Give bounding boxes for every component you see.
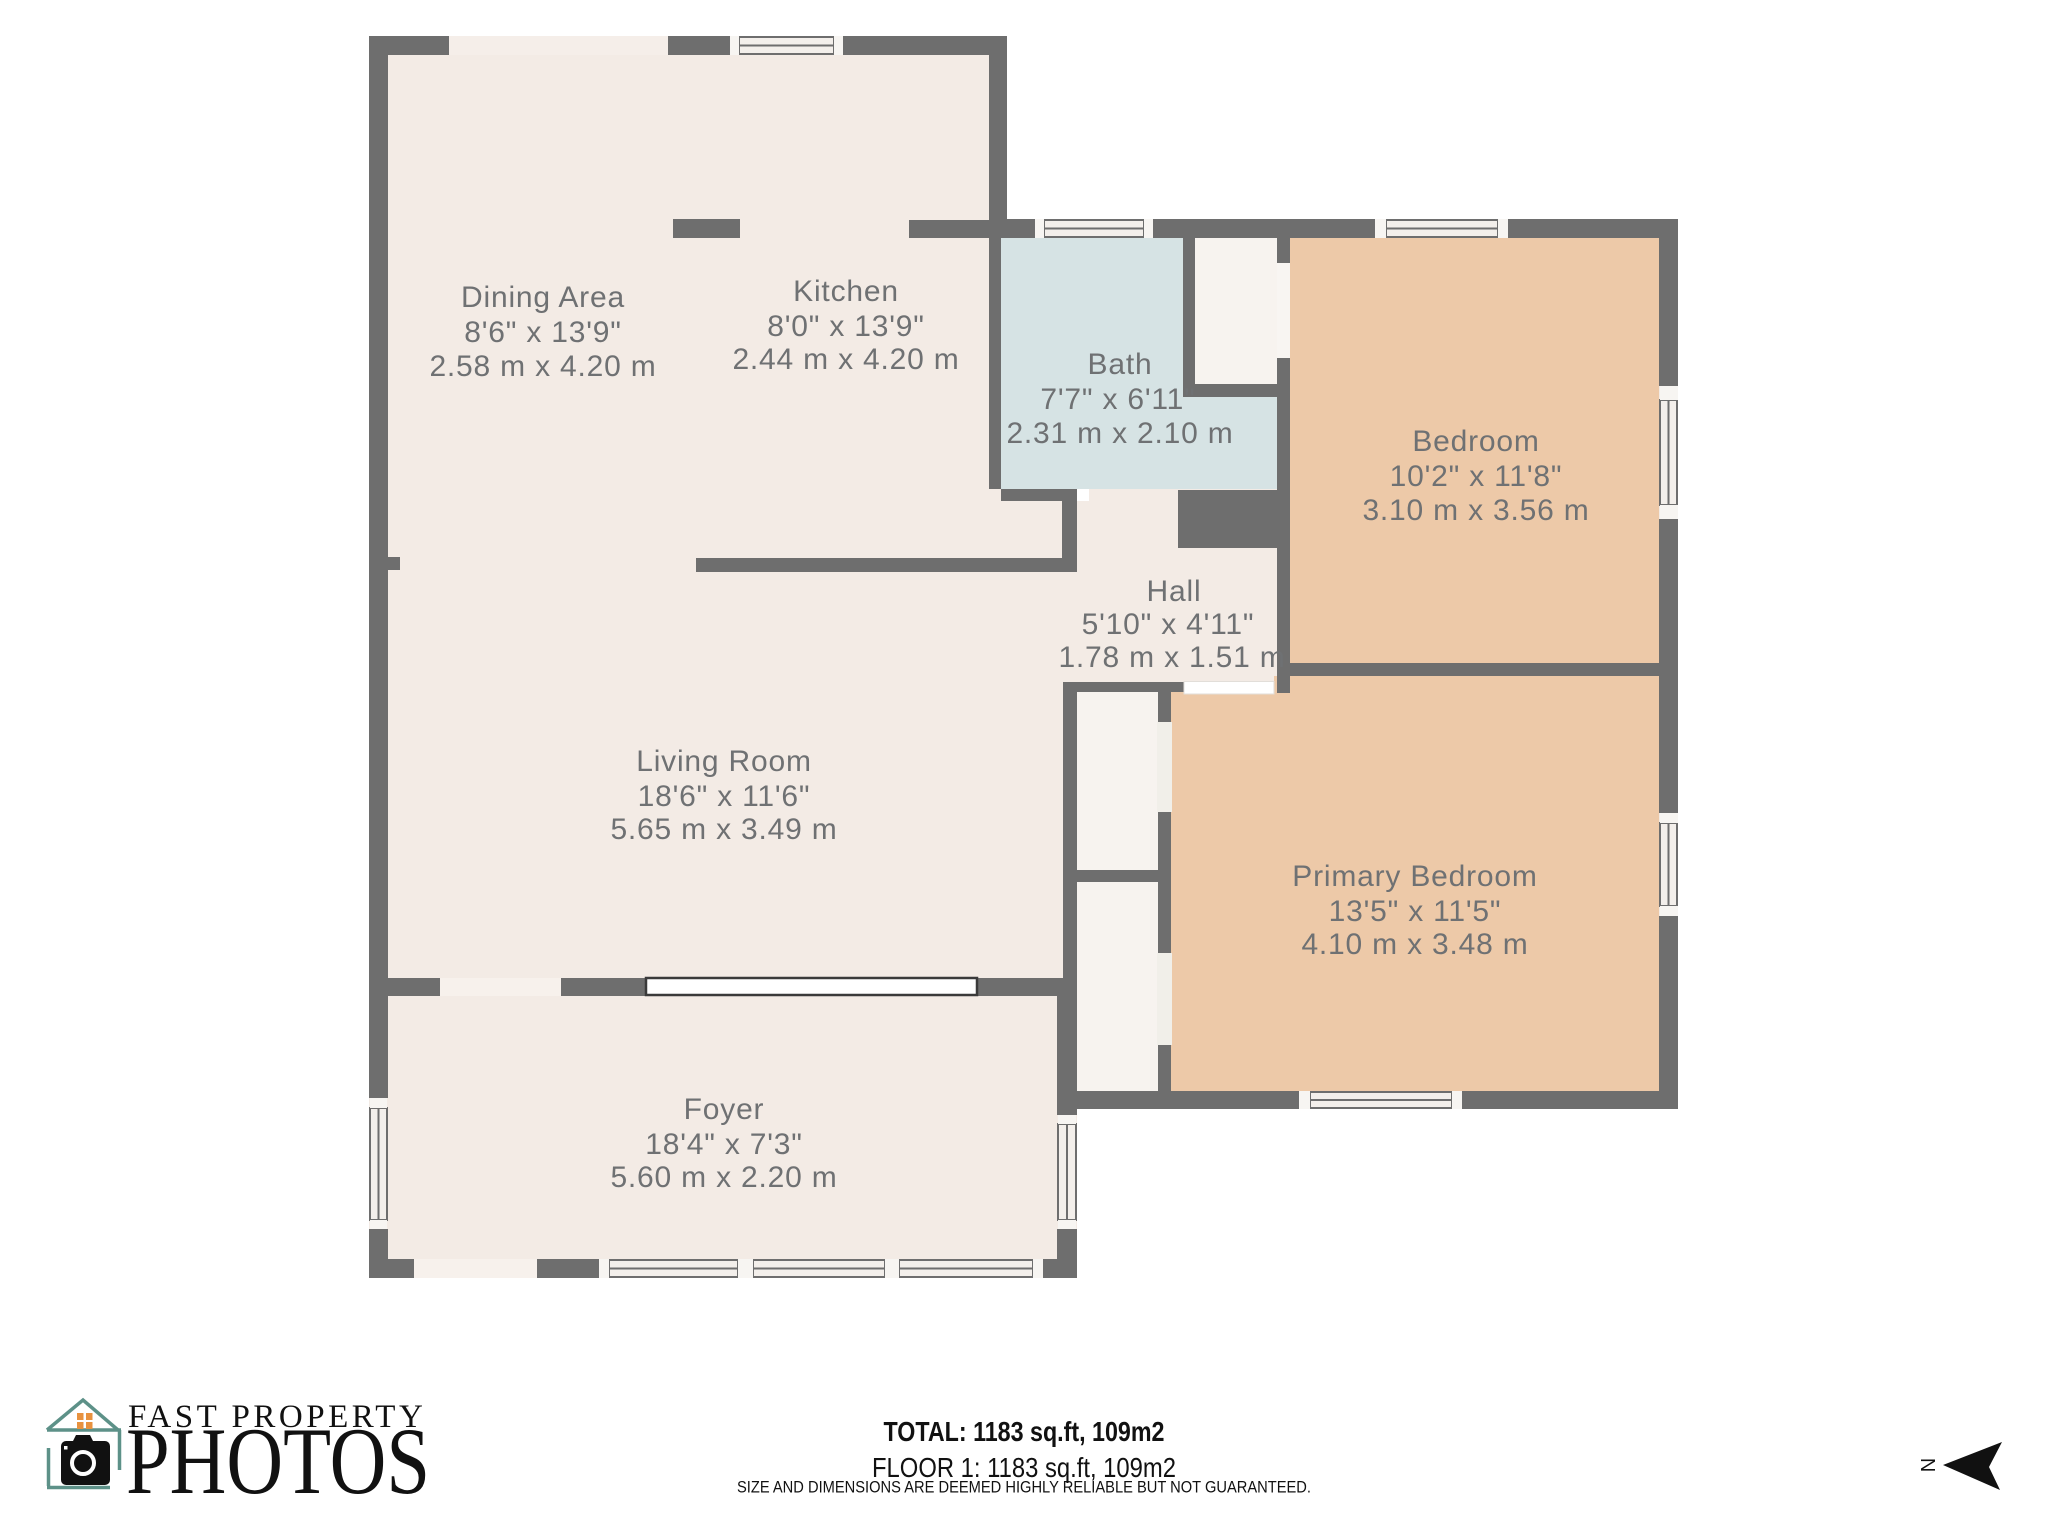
svg-text:13'5" x 11'5": 13'5" x 11'5"	[1329, 895, 1502, 928]
svg-text:8'6" x 13'9": 8'6" x 13'9"	[464, 316, 621, 349]
svg-text:Dining Area: Dining Area	[461, 281, 625, 314]
svg-text:5.65 m x 3.49 m: 5.65 m x 3.49 m	[610, 813, 837, 846]
svg-text:5'10" x 4'11": 5'10" x 4'11"	[1082, 608, 1255, 641]
svg-text:Primary Bedroom: Primary Bedroom	[1292, 860, 1537, 893]
svg-text:10'2" x 11'8": 10'2" x 11'8"	[1390, 460, 1563, 493]
svg-text:SIZE AND DIMENSIONS ARE DEEMED: SIZE AND DIMENSIONS ARE DEEMED HIGHLY RE…	[737, 1479, 1311, 1497]
svg-text:Bath: Bath	[1088, 348, 1153, 381]
svg-text:TOTAL: 1183 sq.ft, 109m2: TOTAL: 1183 sq.ft, 109m2	[884, 1416, 1165, 1447]
svg-text:4.10 m x 3.48 m: 4.10 m x 3.48 m	[1301, 928, 1528, 961]
svg-text:18'4" x 7'3": 18'4" x 7'3"	[645, 1128, 802, 1161]
svg-text:7'7" x 6'11": 7'7" x 6'11"	[1040, 383, 1195, 416]
svg-text:18'6" x 11'6": 18'6" x 11'6"	[638, 780, 811, 813]
svg-text:N: N	[1918, 1458, 1940, 1472]
svg-text:Foyer: Foyer	[684, 1093, 765, 1126]
svg-text:3.10 m x 3.56 m: 3.10 m x 3.56 m	[1362, 494, 1589, 527]
svg-text:8'0" x 13'9": 8'0" x 13'9"	[767, 310, 924, 343]
svg-text:1.78 m x 1.51 m: 1.78 m x 1.51 m	[1058, 641, 1285, 674]
svg-text:Hall: Hall	[1147, 575, 1202, 608]
svg-text:2.58 m x 4.20 m: 2.58 m x 4.20 m	[429, 350, 656, 383]
svg-text:PHOTOS: PHOTOS	[126, 1408, 430, 1514]
svg-text:5.60 m x 2.20 m: 5.60 m x 2.20 m	[610, 1161, 837, 1194]
svg-text:2.31 m x 2.10 m: 2.31 m x 2.10 m	[1006, 417, 1233, 450]
svg-text:Kitchen: Kitchen	[793, 275, 899, 308]
svg-text:Bedroom: Bedroom	[1412, 425, 1539, 458]
svg-text:Living Room: Living Room	[636, 745, 812, 778]
svg-text:2.44 m x 4.20 m: 2.44 m x 4.20 m	[732, 343, 959, 376]
